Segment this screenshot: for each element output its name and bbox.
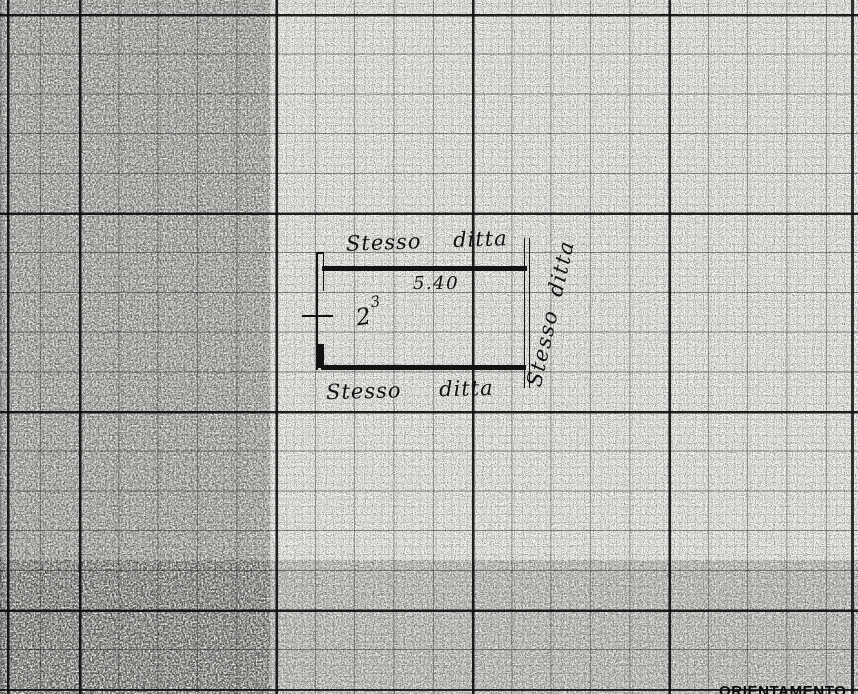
dimension-tick-line — [302, 315, 333, 317]
sheet-right-edge-line — [851, 0, 854, 694]
label-stesso-ditta-top: Stesso ditta — [346, 228, 508, 255]
room-number-mark: 23 — [354, 301, 382, 330]
plan-left-wall-inner-line — [323, 252, 325, 291]
room-number: 2 — [354, 303, 373, 331]
plan-top-wall — [322, 266, 527, 271]
scanned-cadastral-sheet: Stesso ditta 5.40 23 Stesso ditta Stesso… — [0, 0, 858, 694]
footer-clipped-text: ORIENTAMENTO — [719, 683, 846, 694]
plan-left-wall-bottom-segment — [316, 344, 324, 368]
label-stesso-ditta-bottom: Stesso ditta — [326, 378, 494, 403]
dimension-value: 5.40 — [413, 275, 459, 293]
plan-bottom-wall — [321, 365, 526, 370]
graph-paper-grid — [0, 0, 858, 694]
